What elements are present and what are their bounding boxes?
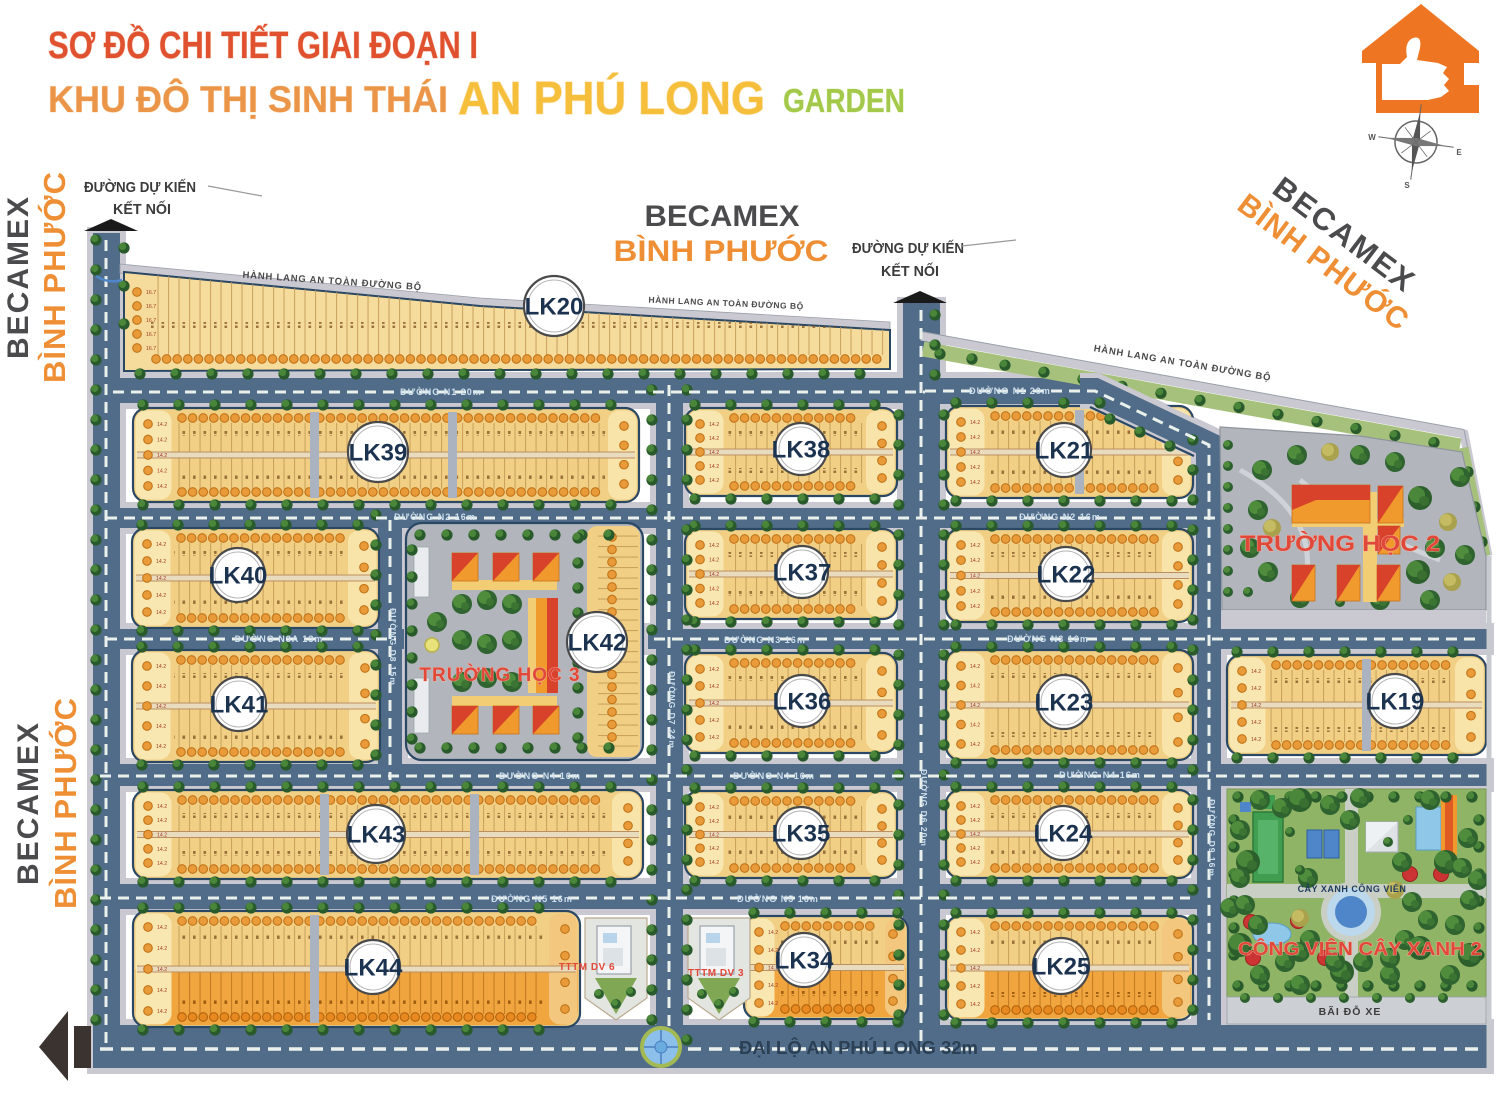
svg-text:14.2: 14.2 [709,422,719,428]
svg-text:KẾT NỐI: KẾT NỐI [881,262,939,280]
svg-text:14.2: 14.2 [970,574,980,580]
svg-text:TTTM DV 3: TTTM DV 3 [688,968,744,979]
svg-text:S: S [1404,181,1410,190]
svg-text:14.2: 14.2 [970,703,980,709]
svg-text:14.2: 14.2 [157,833,167,839]
svg-text:LK39: LK39 [349,440,408,467]
svg-text:LK21: LK21 [1035,438,1094,465]
svg-text:LK35: LK35 [772,821,831,848]
svg-text:14.2: 14.2 [156,542,166,548]
svg-text:14.2: 14.2 [970,558,980,564]
svg-text:14.2: 14.2 [157,1009,167,1015]
svg-text:ĐƯỜNG N5 16m: ĐƯỜNG N5 16m [491,893,573,904]
svg-text:14.2: 14.2 [156,593,166,599]
svg-text:14.2: 14.2 [970,804,980,810]
svg-text:14.2: 14.2 [157,925,167,931]
svg-text:E: E [1456,148,1462,157]
svg-text:14.2: 14.2 [157,847,167,853]
svg-text:W: W [1368,133,1376,142]
svg-text:14.2: 14.2 [970,589,980,595]
svg-text:ĐƯỜNG DỰ KIẾN: ĐƯỜNG DỰ KIẾN [852,239,964,257]
svg-text:14.2: 14.2 [709,860,719,866]
svg-text:14.2: 14.2 [157,484,167,490]
svg-text:14.2: 14.2 [709,450,719,456]
svg-text:BECAMEX: BECAMEX [2,195,35,359]
svg-text:14.2: 14.2 [157,453,167,459]
svg-text:ĐƯỜNG N2 16m: ĐƯỜNG N2 16m [1019,511,1101,522]
svg-text:KHU ĐÔ THỊ SINH THÁI: KHU ĐÔ THỊ SINH THÁI [48,78,448,120]
svg-text:14.2: 14.2 [709,667,719,673]
svg-text:TRƯỜNG HỌC 2: TRƯỜNG HỌC 2 [1240,531,1440,556]
svg-text:14.2: 14.2 [970,832,980,838]
svg-text:14.2: 14.2 [970,465,980,471]
svg-text:14.2: 14.2 [709,601,719,607]
svg-text:14.2: 14.2 [709,587,719,593]
svg-text:HÀNH LANG AN TOÀN ĐƯỜNG BỘ: HÀNH LANG AN TOÀN ĐƯỜNG BỘ [648,294,804,312]
svg-text:14.2: 14.2 [709,436,719,442]
svg-text:TRƯỜNG HỌC 3: TRƯỜNG HỌC 3 [419,664,580,686]
svg-text:LK43: LK43 [347,822,406,849]
svg-text:14.2: 14.2 [709,558,719,564]
svg-text:LK25: LK25 [1032,954,1091,981]
svg-text:16.7: 16.7 [146,290,156,296]
svg-text:14.2: 14.2 [970,723,980,729]
svg-text:ĐƯỜNG N5 16m: ĐƯỜNG N5 16m [737,893,819,904]
svg-text:GARDEN: GARDEN [783,82,905,119]
svg-text:14.2: 14.2 [709,819,719,825]
svg-text:ĐƯỜNG N3A 13m: ĐƯỜNG N3A 13m [235,633,324,644]
svg-text:BECAMEX: BECAMEX [645,200,800,233]
svg-text:ĐƯỜNG N3 16m: ĐƯỜNG N3 16m [724,634,806,645]
svg-text:14.2: 14.2 [970,930,980,936]
svg-text:LK23: LK23 [1035,690,1094,717]
svg-text:14.2: 14.2 [970,480,980,486]
svg-text:14.2: 14.2 [1251,686,1261,692]
svg-text:ĐƯỜNG N3 16m: ĐƯỜNG N3 16m [1007,633,1089,644]
svg-text:14.2: 14.2 [768,1001,778,1007]
svg-text:LK38: LK38 [772,437,831,464]
svg-text:ĐƯỜNG D7 24m: ĐƯỜNG D7 24m [667,671,678,749]
svg-text:ĐƯỜNG N4 16m: ĐƯỜNG N4 16m [1059,769,1141,780]
svg-text:LK40: LK40 [209,563,268,590]
svg-text:LK36: LK36 [773,689,832,716]
svg-text:SƠ ĐỒ CHI TIẾT GIAI ĐOẠN I: SƠ ĐỒ CHI TIẾT GIAI ĐOẠN I [48,23,478,67]
svg-text:14.2: 14.2 [970,948,980,954]
svg-text:14.2: 14.2 [709,805,719,811]
svg-text:BÃI ĐỖ XE: BÃI ĐỖ XE [1319,1005,1382,1018]
svg-text:14.2: 14.2 [157,438,167,444]
svg-text:ĐƯỜNG DỰ KIẾN: ĐƯỜNG DỰ KIẾN [84,178,196,196]
svg-text:14.2: 14.2 [709,684,719,690]
svg-text:ĐƯỜNG N1 20m: ĐƯỜNG N1 20m [400,386,482,397]
svg-text:LK37: LK37 [773,560,832,587]
svg-text:14.2: 14.2 [157,469,167,475]
svg-text:14.2: 14.2 [156,704,166,710]
svg-text:TTTM DV 6: TTTM DV 6 [559,962,615,973]
svg-text:14.2: 14.2 [970,1002,980,1008]
svg-text:14.2: 14.2 [970,966,980,972]
svg-text:ĐƯỜNG D6 20m: ĐƯỜNG D6 20m [919,769,930,847]
svg-text:14.2: 14.2 [970,604,980,610]
svg-text:14.2: 14.2 [1251,669,1261,675]
svg-text:16.7: 16.7 [146,318,156,324]
svg-text:BECAMEX: BECAMEX [12,721,45,885]
svg-text:14.2: 14.2 [709,701,719,707]
svg-text:14.2: 14.2 [970,543,980,549]
svg-text:ĐƯỜNG N1 20m: ĐƯỜNG N1 20m [969,385,1051,396]
svg-text:14.2: 14.2 [970,818,980,824]
svg-text:14.2: 14.2 [156,559,166,565]
svg-text:14.2: 14.2 [157,818,167,824]
svg-text:CÂY XANH CÔNG VIÊN: CÂY XANH CÔNG VIÊN [1298,883,1407,894]
svg-text:14.2: 14.2 [970,860,980,866]
svg-text:14.2: 14.2 [1251,703,1261,709]
svg-text:ĐƯỜNG N4 16m: ĐƯỜNG N4 16m [499,770,581,781]
svg-text:16.7: 16.7 [146,346,156,352]
svg-text:14.2: 14.2 [157,804,167,810]
svg-text:14.2: 14.2 [970,435,980,441]
svg-text:14.2: 14.2 [709,464,719,470]
svg-text:KẾT NỐI: KẾT NỐI [113,200,171,218]
svg-text:LK34: LK34 [775,948,834,975]
svg-text:14.2: 14.2 [156,684,166,690]
svg-text:ĐƯỜNG D9 16m: ĐƯỜNG D9 16m [1207,799,1218,877]
svg-text:LK42: LK42 [568,630,627,657]
svg-text:ĐƯỜNG D8 15m: ĐƯỜNG D8 15m [388,608,399,686]
svg-text:LK44: LK44 [344,955,403,982]
svg-text:14.2: 14.2 [709,735,719,741]
svg-text:LK22: LK22 [1037,562,1096,589]
svg-text:14.2: 14.2 [156,744,166,750]
svg-text:LK41: LK41 [210,692,269,719]
svg-text:14.2: 14.2 [970,664,980,670]
svg-text:16.7: 16.7 [146,332,156,338]
svg-text:14.2: 14.2 [970,984,980,990]
svg-text:14.2: 14.2 [157,422,167,428]
svg-text:14.2: 14.2 [970,684,980,690]
svg-text:14.2: 14.2 [157,861,167,867]
svg-text:LK20: LK20 [525,294,584,321]
svg-text:14.2: 14.2 [970,846,980,852]
svg-text:BÌNH PHƯỚC: BÌNH PHƯỚC [47,697,83,909]
svg-text:14.2: 14.2 [709,478,719,484]
svg-text:ĐƯỜNG N4 16m: ĐƯỜNG N4 16m [733,770,815,781]
svg-text:14.2: 14.2 [709,846,719,852]
svg-text:14.2: 14.2 [157,988,167,994]
svg-text:ĐƯỜNG N2 16m: ĐƯỜNG N2 16m [394,511,476,522]
svg-text:14.2: 14.2 [768,930,778,936]
svg-text:14.2: 14.2 [156,610,166,616]
svg-text:14.2: 14.2 [709,572,719,578]
svg-text:AN PHÚ LONG: AN PHÚ LONG [458,72,765,124]
svg-text:14.2: 14.2 [157,967,167,973]
svg-text:14.2: 14.2 [970,742,980,748]
svg-text:14.2: 14.2 [156,664,166,670]
svg-text:ĐẠI LỘ AN PHÚ LONG 32m: ĐẠI LỘ AN PHÚ LONG 32m [739,1037,978,1058]
svg-text:14.2: 14.2 [156,724,166,730]
svg-text:16.7: 16.7 [146,304,156,310]
svg-text:14.2: 14.2 [1251,737,1261,743]
svg-text:14.2: 14.2 [970,420,980,426]
svg-text:CÔNG VIÊN CÂY XANH 2: CÔNG VIÊN CÂY XANH 2 [1238,938,1482,959]
svg-text:14.2: 14.2 [157,946,167,952]
svg-text:14.2: 14.2 [709,718,719,724]
svg-text:14.2: 14.2 [970,450,980,456]
svg-text:LK24: LK24 [1034,821,1093,848]
svg-text:LK19: LK19 [1366,689,1425,716]
svg-text:14.2: 14.2 [156,576,166,582]
svg-text:BÌNH PHƯỚC: BÌNH PHƯỚC [36,171,72,383]
svg-text:BÌNH PHƯỚC: BÌNH PHƯỚC [614,234,829,268]
svg-text:14.2: 14.2 [709,833,719,839]
svg-text:14.2: 14.2 [1251,720,1261,726]
svg-text:14.2: 14.2 [709,543,719,549]
svg-text:14.2: 14.2 [768,983,778,989]
